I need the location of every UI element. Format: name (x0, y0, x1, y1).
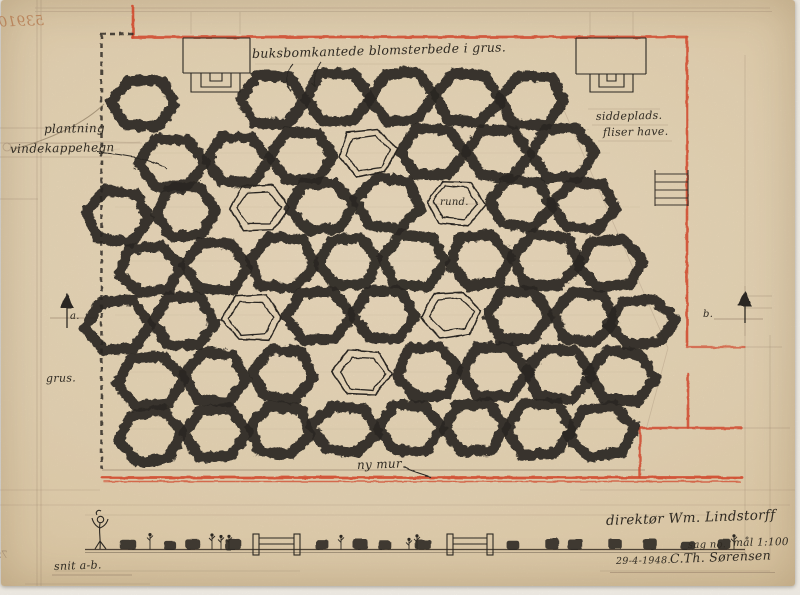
section-cut-label: snit a-b. (54, 558, 102, 573)
plant-flower (210, 533, 213, 536)
round-hex-label: rund. (440, 197, 469, 208)
shrub-block (545, 538, 558, 550)
plant-flower (148, 533, 151, 536)
plant-flower (227, 535, 230, 538)
shrub-block (568, 539, 582, 550)
shrub-block (120, 540, 135, 550)
shrub-block (379, 540, 392, 549)
shrub-block (316, 540, 329, 549)
gravel-label: grus. (46, 371, 76, 385)
shrub-block (608, 539, 622, 550)
marker-b-label: b. (703, 309, 713, 320)
stamp-number: 799-1 (0, 550, 8, 561)
shrub-block (415, 540, 431, 550)
shrub-block (643, 539, 657, 550)
fence-label: vindekappehegn (10, 140, 115, 156)
shrub-block (164, 541, 176, 549)
plant-flower (339, 535, 342, 538)
shrub-block (186, 539, 201, 549)
shrub-block (353, 539, 368, 550)
plan-drawing (0, 0, 800, 595)
scanned-garden-plan: 53910 buksbomkantede blomsterbede i grus… (0, 0, 800, 595)
ghost-sheet-number: 53910 (0, 13, 44, 31)
plant-flower (219, 535, 222, 538)
shrub-block (507, 541, 520, 550)
date-label: 29-4-1948. (616, 555, 671, 567)
plant-flower (407, 538, 410, 541)
marker-a-label: a. (70, 311, 80, 322)
plant-flower (415, 534, 418, 537)
tiles-label: fliser have. (603, 125, 669, 139)
seating-label: siddeplads. (596, 109, 663, 123)
planting-label: plantning (44, 121, 105, 136)
new-wall-label: ny mur (357, 456, 402, 472)
